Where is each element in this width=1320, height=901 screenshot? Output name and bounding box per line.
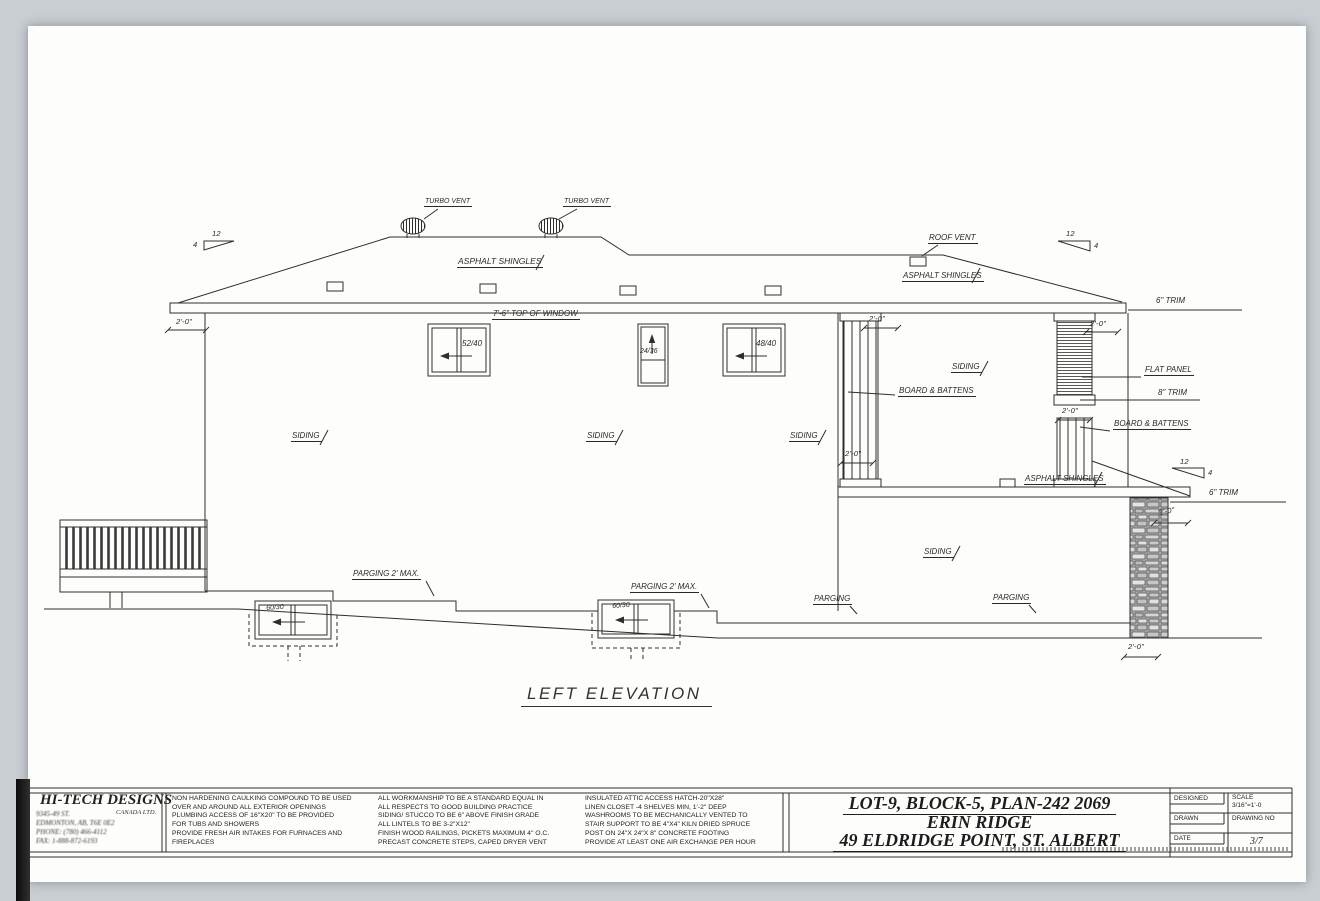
lower-roof	[838, 461, 1190, 497]
general-notes-col3: INSULATED ATTIC ACCESS HATCH-20"X28" LIN…	[585, 795, 756, 847]
label-leaders	[320, 209, 1102, 614]
note-line: ALL RESPECTS TO GOOD BUILDING PRACTICE	[378, 804, 549, 813]
slope-rise-3: 12	[1180, 457, 1189, 466]
note-line: ALL LINTELS TO BE 3-2"X12"	[378, 821, 549, 830]
grade-lines	[44, 591, 1262, 638]
date-label: DATE	[1174, 835, 1191, 842]
slope-rise-2: 12	[1066, 229, 1075, 238]
stone-pillar	[1130, 498, 1168, 638]
roof-vent-label: ROOF VENT	[928, 233, 978, 244]
window-size-24-36: 24/36	[640, 348, 658, 355]
siding-label-1: SIDING	[291, 431, 322, 442]
drawn-label: DRAWN	[1174, 815, 1198, 822]
window-52-40	[428, 324, 490, 376]
trim-6in-label-upper: 6" TRIM	[1156, 296, 1185, 305]
sheet-title: LEFT ELEVATION	[521, 684, 712, 707]
drawing-no-label: DRAWING NO	[1232, 815, 1275, 822]
note-line: PRECAST CONCRETE STEPS, CAPED DRYER VENT	[378, 839, 549, 848]
company-subtitle: CANADA LTD.	[116, 809, 156, 816]
turbo-vent-label-1: TURBO VENT	[424, 198, 472, 207]
note-line: NON HARDENING CAULKING COMPOUND TO BE US…	[172, 795, 352, 804]
parging-label-2: PARGING	[992, 593, 1031, 604]
note-line: STAIR SUPPORT TO BE 4"X4" KILN DRIED SPR…	[585, 821, 756, 830]
fine-print-strip	[1002, 847, 1288, 851]
siding-label-3: SIDING	[789, 431, 820, 442]
company-address-1: 9345-49 ST.	[36, 810, 70, 818]
window-size-60-30-b: 60/30	[612, 602, 630, 610]
note-line: PROVIDE FRESH AIR INTAKES FOR FURNACES A…	[172, 830, 352, 839]
note-line: POST ON 24"X 24"X 8" CONCRETE FOOTING	[585, 830, 756, 839]
trim-8in-label: 8" TRIM	[1158, 388, 1187, 397]
note-line: ALL WORKMANSHIP TO BE A STANDARD EQUAL I…	[378, 795, 549, 804]
window-48-40	[723, 324, 785, 376]
board-battens-label-2: BOARD & BATTENS	[1113, 419, 1191, 430]
company-address-2: EDMONTON, AB, T6E 0E2	[36, 819, 115, 827]
designed-label: DESIGNED	[1174, 795, 1208, 802]
window-well-1	[249, 614, 337, 661]
parging-max-label-2: PARGING 2' MAX.	[630, 582, 699, 593]
note-line: FINISH WOOD RAILINGS, PICKETS MAXIMUM 4"…	[378, 830, 549, 839]
dimension-brackets	[165, 325, 1191, 660]
note-line: LINEN CLOSET -4 SHELVES MIN, 1'-2" DEEP	[585, 804, 756, 813]
parging-max-label-1: PARGING 2' MAX.	[352, 569, 421, 580]
dim-2ft-4: 2'-0"	[1062, 406, 1078, 415]
elevation-drawing: TURBO VENT TURBO VENT ASPHALT SHINGLES R…	[0, 0, 1320, 901]
board-battens-label-1: BOARD & BATTENS	[898, 386, 976, 397]
siding-label-2: SIDING	[586, 431, 617, 442]
scale-label: SCALE	[1232, 794, 1253, 801]
note-line: FOR TUBS AND SHOWERS	[172, 821, 352, 830]
siding-label-5: SIDING	[923, 547, 954, 558]
asphalt-shingles-label-1: ASPHALT SHINGLES	[457, 256, 543, 268]
window-size-60-30-a: 60/30	[266, 604, 284, 612]
trim-6in-label-lower: 6" TRIM	[1209, 488, 1238, 497]
siding-label-4: SIDING	[951, 362, 982, 373]
turbo-vent-label-2: TURBO VENT	[563, 198, 611, 207]
note-line: PROVIDE AT LEAST ONE AIR EXCHANGE PER HO…	[585, 839, 756, 848]
note-line: FIREPLACES	[172, 839, 352, 848]
general-notes-col1: NON HARDENING CAULKING COMPOUND TO BE US…	[172, 795, 352, 847]
slope-rise-1: 12	[212, 229, 221, 238]
slope-run-3: 4	[1208, 468, 1212, 477]
flat-panel-label: FLAT PANEL	[1144, 365, 1194, 376]
dim-2ft-1: 2'-0"	[176, 317, 192, 326]
note-line: PLUMBING ACCESS OF 16"X20" TO BE PROVIDE…	[172, 812, 352, 821]
asphalt-shingles-label-3: ASPHALT SHINGLES	[1024, 474, 1106, 485]
deck-railing	[60, 520, 207, 608]
turbo-vent-1-shape	[401, 218, 425, 238]
parging-label-1: PARGING	[813, 594, 852, 605]
slope-run-2: 4	[1094, 241, 1098, 250]
company-name: HI-TECH DESIGNS	[40, 792, 172, 809]
asphalt-shingles-label-2: ASPHALT SHINGLES	[902, 271, 984, 282]
note-line: WASHROOMS TO BE MECHANICALLY VENTED TO	[585, 812, 756, 821]
company-phone: PHONE: (780) 466-4112	[36, 828, 107, 836]
turbo-vent-2-shape	[539, 218, 563, 238]
top-of-window-label: 7'-6" TOP OF WINDOW	[492, 309, 580, 320]
window-size-48-40: 48/40	[756, 339, 776, 348]
slope-run-1: 4	[193, 240, 197, 249]
walls	[205, 313, 1128, 611]
dim-2ft-3: 2'-0"	[1090, 319, 1106, 328]
scale-value: 3/16"=1'-0	[1232, 802, 1261, 809]
project-lot-line: LOT-9, BLOCK-5, PLAN-242 2069	[789, 793, 1170, 814]
roof-vent-box	[910, 257, 926, 266]
window-24-36	[638, 324, 668, 386]
company-fax: FAX: 1-888-872-6193	[36, 837, 98, 845]
binder-edge-bar	[16, 779, 30, 901]
elevation-linework	[0, 0, 1320, 901]
note-line: OVER AND AROUND ALL EXTERIOR OPENINGS	[172, 804, 352, 813]
drawing-no-value: 3/7	[1250, 836, 1263, 847]
general-notes-col2: ALL WORKMANSHIP TO BE A STANDARD EQUAL I…	[378, 795, 549, 847]
note-line: INSULATED ATTIC ACCESS HATCH-20"X28"	[585, 795, 756, 804]
dim-2ft-2: 2'-0"	[869, 314, 885, 323]
dim-2ft-5: 2'-0"	[845, 449, 861, 458]
window-size-52-40: 52/40	[462, 339, 482, 348]
dim-2ft-7: 2'-0"	[1128, 642, 1144, 651]
slope-markers	[204, 241, 1204, 478]
note-line: SIDING/ STUCCO TO BE 6" ABOVE FINISH GRA…	[378, 812, 549, 821]
